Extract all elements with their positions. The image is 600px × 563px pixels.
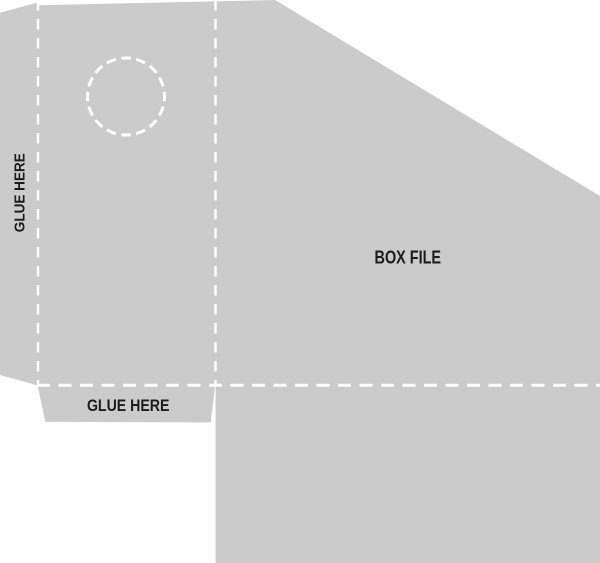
- svg-text:GLUE HERE: GLUE HERE: [11, 153, 28, 232]
- svg-text:GLUE HERE: GLUE HERE: [87, 397, 170, 415]
- svg-text:BOX FILE: BOX FILE: [375, 248, 442, 268]
